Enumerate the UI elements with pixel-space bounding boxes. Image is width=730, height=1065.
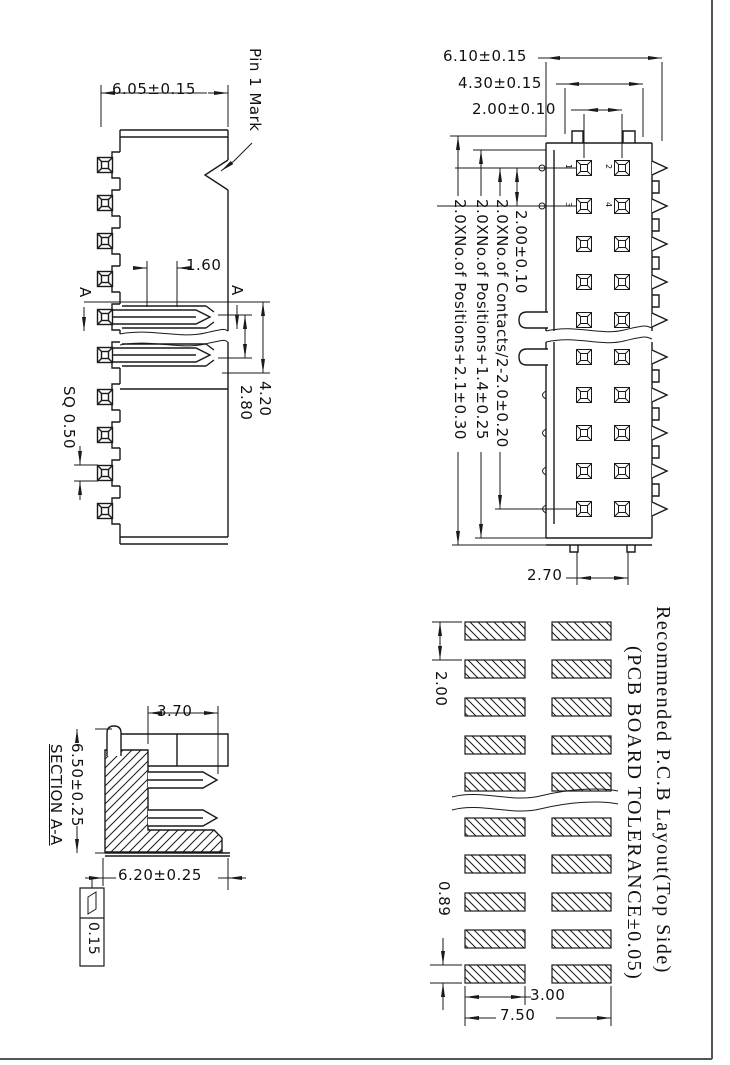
pin-number-4: 4: [604, 202, 612, 207]
dim-pcb-pad-width: 3.00: [530, 988, 565, 1003]
dim-side-pin-square: SQ 0.50: [61, 386, 76, 449]
top-view: [519, 131, 667, 552]
engineering-drawing: 6.05±0.15 Pin 1 Mark 1.60 A A 4.20 2.80 …: [0, 0, 730, 1065]
side-view: [98, 130, 229, 544]
pin-number-1: 1: [564, 164, 572, 169]
drawing-linework: [0, 0, 730, 1065]
dim-top-overall: 6.10±0.15: [443, 49, 527, 64]
section-marker-a-right: A: [229, 285, 244, 296]
pin1-mark-label: Pin 1 Mark: [247, 48, 262, 131]
pcb-layout: [452, 622, 618, 983]
dim-section-top: 3.70: [157, 704, 192, 719]
dim-section-width: 6.20±0.25: [118, 868, 202, 883]
dim-pcb-span: 7.50: [500, 1008, 535, 1023]
dim-side-slot: 1.60: [186, 258, 221, 273]
section-title: SECTION A-A: [48, 744, 63, 846]
pin-number-2: 2: [604, 164, 612, 169]
pcb-layout-subtitle: (PCB BOARD TOLERANCE±0.05): [624, 646, 644, 980]
dim-top-tail: 2.70: [527, 568, 562, 583]
dim-top-col-pitch: 2.00±0.10: [472, 102, 556, 117]
dim-pcb-pad-height: 0.89: [436, 881, 451, 916]
pin-number-3: 3: [564, 202, 572, 207]
dim-top-positions-outer: 2.0XNo.of Positions+2.1±0.30: [452, 199, 467, 440]
section-marker-a-left: A: [77, 287, 92, 298]
dim-section-height: 6.50±0.25: [69, 743, 84, 827]
dim-top-positions-inner: 2.0XNo.of Positions+1.4±0.25: [474, 199, 489, 440]
dim-side-height: 4.20: [257, 381, 272, 416]
dim-side-inner-height: 2.80: [238, 385, 253, 420]
dim-top-contacts: 2.0XNo.of Contacts/2-2.0±0.20: [494, 199, 509, 448]
pcb-layout-title: Recommended P.C.B Layout(Top Side): [653, 606, 673, 974]
dim-top-shroud: 4.30±0.15: [458, 76, 542, 91]
dim-side-body-width: 6.05±0.15: [112, 82, 196, 97]
section-view: [105, 726, 230, 856]
flatness-tolerance: 0.15: [86, 922, 100, 955]
dim-pcb-pitch: 2.00: [433, 671, 448, 706]
dim-top-row-pitch: 2.00±0.10: [513, 210, 528, 294]
